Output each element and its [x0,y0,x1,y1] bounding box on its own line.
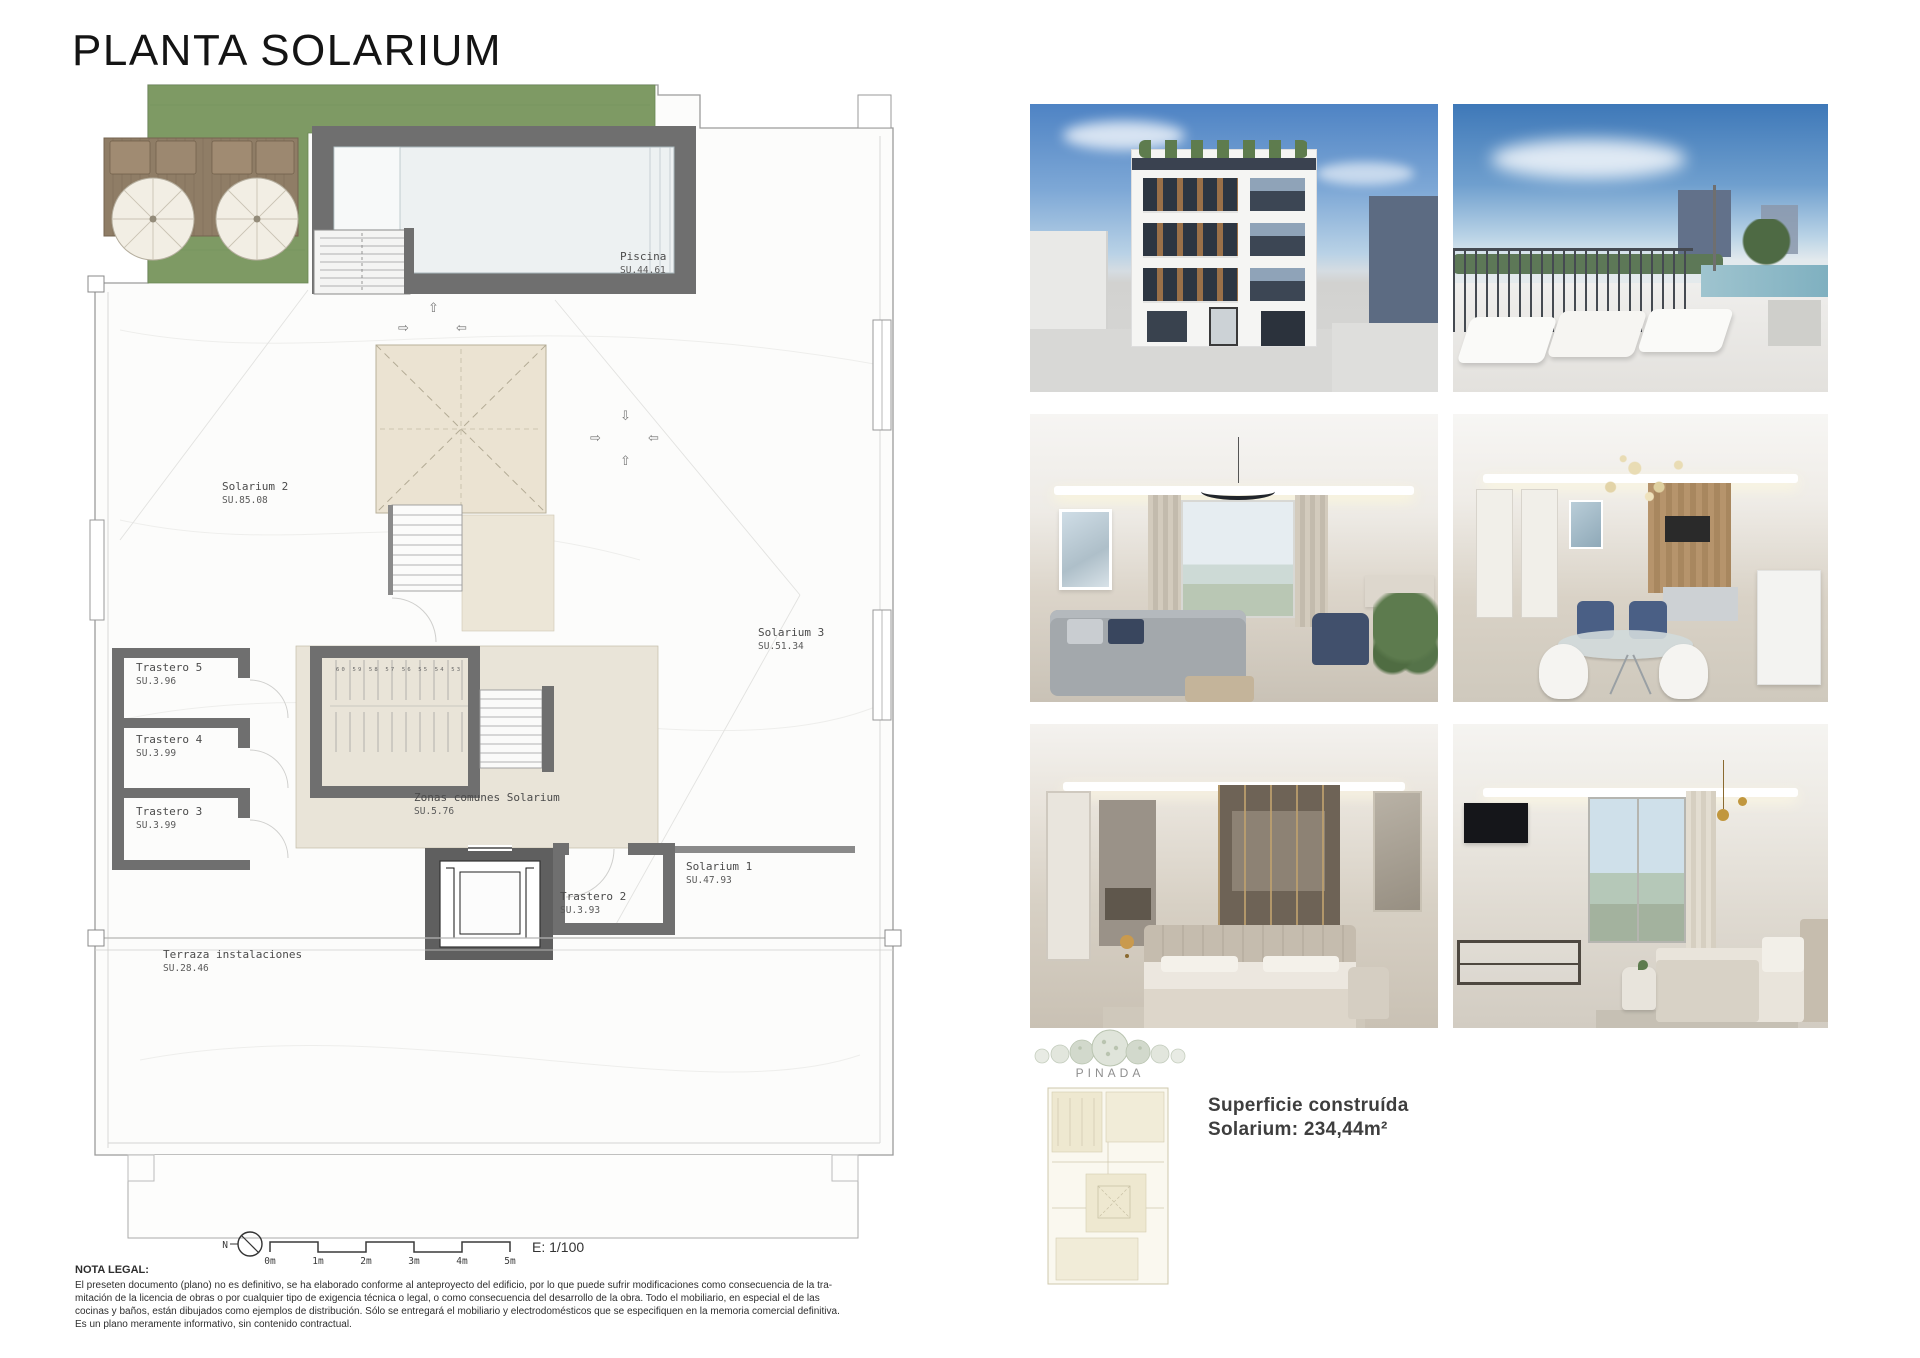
plant [1373,593,1438,702]
room-label: Trastero 3 [136,805,202,818]
stair-run-upper [388,505,462,595]
sun-lounger [1637,309,1734,352]
curtain [1295,495,1328,627]
room-label: Solarium 3 [758,626,824,639]
tv-screen [1464,803,1528,843]
floor-plan-drawing: ⇧⇨⇦ ⇩⇨⇦⇧ 60 59 58 57 56 55 54 53 [75,70,970,1265]
legal-note-line: Es un plano meramente informativo, sin c… [75,1318,875,1331]
pillow [1263,956,1339,973]
potted-plant [1742,219,1791,274]
neighbor-building [1030,231,1108,329]
wardrobe-frames [1218,785,1340,931]
gold-table-lamp [1120,935,1134,949]
svg-text:⇩: ⇩ [620,409,631,424]
ground-window [1147,311,1187,342]
room-label: Trastero 4 [136,733,203,746]
roof-edge-strip [128,1155,858,1238]
ceiling-cove [1483,788,1798,797]
photo-rooftop-pool-terrace [1453,104,1828,392]
mini-plan-thumbnail [1026,1082,1190,1292]
room-label: Piscina [620,250,666,263]
svg-text:SU.3.93: SU.3.93 [560,905,600,916]
svg-text:SU.47.93: SU.47.93 [686,875,732,886]
sun-lounger [256,141,294,174]
window-mullion [1637,799,1639,941]
console-desk [1457,940,1581,986]
svg-text:⇦: ⇦ [456,321,467,336]
window-sea-view [1181,500,1295,618]
svg-text:SU.85.08: SU.85.08 [222,495,268,506]
sun-lounger [156,141,196,174]
ceiling-fan-lamp [1201,483,1274,500]
sun-lounger [1547,311,1648,357]
svg-text:SU.5.76: SU.5.76 [414,806,454,817]
built-area-summary: Superficie construída Solarium: 234,44m² [1208,1094,1409,1142]
svg-text:SU.3.96: SU.3.96 [136,676,176,687]
svg-text:SU.28.46: SU.28.46 [163,963,209,974]
room-label: Solarium 2 [222,480,288,493]
parasol [112,178,194,260]
glass-wardrobe [1218,785,1340,931]
svg-text:SU.3.99: SU.3.99 [136,820,176,831]
svg-text:SU.44.61: SU.44.61 [620,265,666,276]
bedside-table [1622,967,1656,1010]
brand-name: PINADA [1020,1066,1200,1080]
skylight [376,345,546,513]
svg-text:⇧: ⇧ [428,301,439,316]
legal-note-line: mitación de la licencia de obras o por c… [75,1292,875,1305]
legal-note-line: El preseten documento (plano) no es defi… [75,1279,875,1292]
stair-tread-numbers: 60 59 58 57 56 55 54 53 [336,667,460,673]
corner-pillar [858,95,891,128]
doorway [1046,791,1091,961]
balcony [1250,268,1305,301]
sun-lounger [212,141,252,174]
window-row [1143,223,1238,256]
legal-note-heading: NOTA LEGAL: [75,1264,875,1276]
duvet [1144,989,1356,1028]
sun-lounger [110,141,150,174]
room-label: Zonas comunes Solarium [414,791,560,804]
cloud [1316,162,1414,185]
photo-building-exterior [1030,104,1438,392]
scale-bar: 0m 1m 2m 3m 4m 5m E: 1/100 [264,1239,584,1265]
pillow [1762,937,1803,972]
photo-bedroom-views [1453,724,1828,1028]
bed [1144,925,1356,1028]
balcony [1250,178,1305,211]
window-row [1143,268,1238,301]
wall-art [1569,500,1603,549]
pillow [1161,956,1237,973]
bubble-chandelier [1596,443,1694,506]
built-area-line1: Superficie construída [1208,1094,1409,1118]
room-label: Terraza instalaciones [163,948,302,961]
coffee-table [1185,676,1254,702]
built-in-oven [1665,516,1710,542]
landing [462,515,554,631]
dining-chair-white [1539,644,1588,699]
gold-pendant-bulb [1738,797,1747,806]
distant-building [1678,190,1731,256]
pool-stairs [314,228,414,294]
mirror [1373,791,1422,913]
room-label: Solarium 1 [686,860,752,873]
sun-lounger [1457,317,1558,363]
shower-column [1713,185,1716,271]
lamp-cord [1238,437,1239,483]
page-title: PLANTA SOLARIUM [72,26,502,76]
planter [1768,300,1821,346]
photo-bedroom-dressing [1030,724,1438,1028]
sofa-cushion [1108,619,1145,645]
bedside-table [1348,967,1389,1019]
photo-dining-kitchen [1453,414,1828,702]
neighbor-building-dark [1369,196,1438,328]
bed [1656,919,1829,1022]
headboard [1800,919,1828,1022]
curtain [1148,495,1181,627]
built-area-line2: Solarium: 234,44m² [1208,1118,1409,1142]
table-leg [1632,655,1651,695]
garage-opening [1261,311,1305,346]
svg-text:SU.3.99: SU.3.99 [136,748,176,759]
room-label: Trastero 5 [136,661,202,674]
dining-chair-white [1659,644,1708,699]
side-wall [1332,323,1438,392]
duvet [1656,960,1760,1022]
white-cabinet [1757,570,1821,685]
balcony [1250,223,1305,256]
legal-note-line: cocinas y baños, están dibujados como ej… [75,1305,875,1318]
vanity-cabinet [1105,888,1151,920]
main-building [1132,150,1316,346]
gold-pendant-bulb [1717,809,1729,821]
door [1521,489,1559,619]
roof-railing [1132,158,1316,170]
svg-text:N: N [222,1240,228,1251]
svg-text:SU.51.34: SU.51.34 [758,641,804,652]
table-leg [1609,655,1628,695]
roof-plants [1139,140,1308,158]
legal-note: NOTA LEGAL: El preseten documento (plano… [75,1264,875,1331]
svg-text:⇧: ⇧ [620,454,631,469]
armchair [1312,613,1369,665]
scale-ratio: E: 1/100 [532,1239,584,1255]
window-row [1143,178,1238,211]
elevator [425,845,553,960]
svg-text:⇦: ⇦ [648,431,659,446]
entrance-door [1209,307,1238,346]
door [1476,489,1514,619]
wall-art [1059,509,1112,590]
cloud [1491,139,1686,179]
gold-pendant-light [1723,760,1724,809]
pinada-logo-trees [1020,1028,1200,1070]
photo-living-room [1030,414,1438,702]
left-wall-window [90,520,104,620]
parasol [216,178,298,260]
svg-text:⇨: ⇨ [398,321,409,336]
room-label: Trastero 2 [560,890,626,903]
sofa-cushion [1067,619,1104,645]
svg-text:⇨: ⇨ [590,431,601,446]
kitchen-island [1663,587,1738,622]
stair-run-lower [480,686,554,772]
console-shelf [1460,963,1578,965]
